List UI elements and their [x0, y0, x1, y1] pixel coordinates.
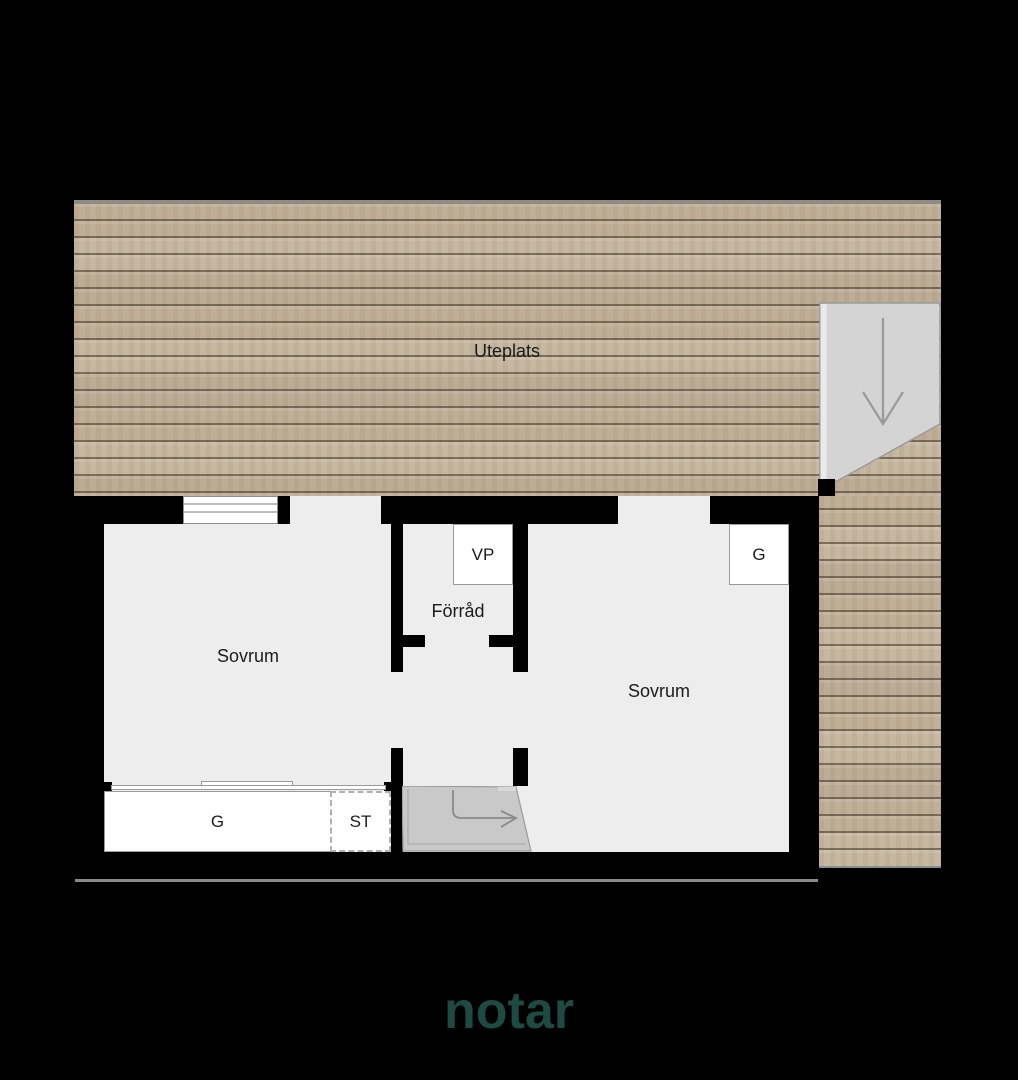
stair-landing-shape — [820, 303, 940, 481]
wardrobe-right-label: G — [752, 545, 765, 565]
ramp-step — [498, 787, 516, 791]
bedroom-left-label: Sovrum — [168, 646, 328, 667]
water-heater-label: VP — [472, 545, 495, 565]
door-jamb — [489, 635, 513, 647]
interior-wall — [391, 498, 403, 672]
cleaning-closet-box: ST — [330, 791, 391, 852]
deck-side-strip — [819, 496, 941, 868]
wall-post — [818, 479, 835, 496]
sliding-door-panel — [201, 781, 293, 786]
water-heater-box: VP — [453, 524, 513, 585]
entrance-ramp — [402, 786, 532, 852]
window — [183, 496, 278, 524]
floorplan-canvas: VP G G ST Uteplats Sovrum Sovrum Förråd … — [0, 0, 1018, 1080]
deck-label: Uteplats — [427, 341, 587, 362]
window-glazing-line — [184, 503, 277, 505]
building-outline — [75, 879, 818, 882]
wardrobe-box-left: G — [104, 791, 331, 852]
deck-door-opening-left — [290, 496, 381, 524]
window-glazing-line — [184, 511, 277, 513]
interior-wall — [513, 748, 528, 786]
cleaning-closet-label: ST — [350, 812, 372, 832]
wardrobe-box-right: G — [729, 524, 789, 585]
stair-landing-edge — [821, 304, 827, 480]
interior-wall — [513, 498, 528, 672]
bedroom-right-label: Sovrum — [579, 681, 739, 702]
deck-door-opening-right — [618, 496, 710, 524]
notar-logo: notar — [0, 981, 1018, 1041]
door-jamb — [403, 635, 425, 647]
deck-stair-landing — [819, 302, 941, 482]
wardrobe-left-label: G — [211, 812, 224, 832]
storage-label: Förråd — [378, 601, 538, 622]
